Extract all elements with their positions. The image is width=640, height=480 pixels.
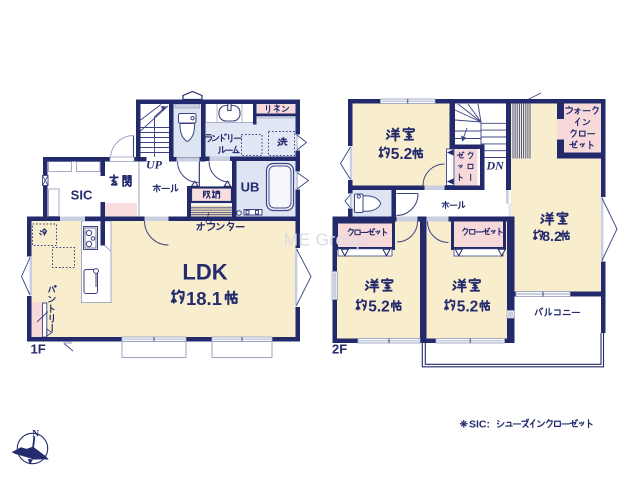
- svg-text:2F: 2F: [332, 342, 347, 357]
- svg-text:8.2: 8.2: [542, 228, 562, 244]
- svg-text:5.2: 5.2: [391, 146, 413, 163]
- svg-text:DN: DN: [486, 159, 506, 173]
- svg-text:UB: UB: [241, 180, 260, 195]
- svg-text:UP: UP: [146, 158, 163, 172]
- svg-text:ME Group: ME Group: [284, 230, 366, 250]
- svg-text:1F: 1F: [31, 342, 46, 357]
- svg-text:SIC:: SIC:: [469, 419, 490, 431]
- svg-text:5.2: 5.2: [457, 299, 479, 316]
- svg-text:LDK: LDK: [182, 260, 227, 285]
- svg-text:5.2: 5.2: [368, 299, 390, 316]
- svg-text:SIC: SIC: [71, 188, 93, 203]
- svg-text:18.1: 18.1: [186, 288, 222, 309]
- svg-text:N: N: [32, 430, 39, 440]
